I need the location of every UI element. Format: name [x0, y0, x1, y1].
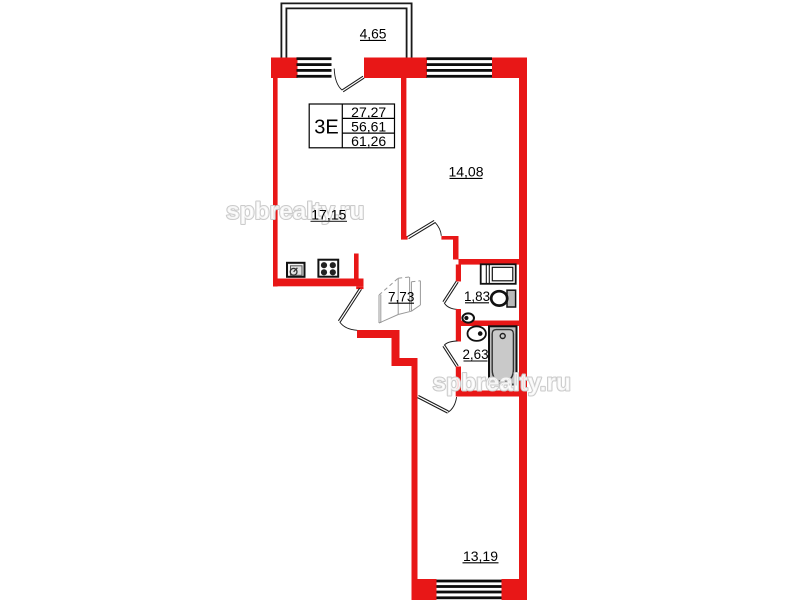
svg-text:13,19: 13,19 [463, 548, 498, 564]
svg-text:27,27: 27,27 [351, 104, 386, 120]
svg-text:17,15: 17,15 [311, 207, 346, 223]
svg-text:3Е: 3Е [314, 117, 338, 139]
svg-text:4,65: 4,65 [360, 27, 387, 42]
svg-text:1,83: 1,83 [464, 289, 490, 304]
svg-text:56,61: 56,61 [351, 119, 386, 135]
svg-text:61,26: 61,26 [351, 133, 386, 149]
svg-text:2,63: 2,63 [462, 347, 488, 362]
svg-text:14,08: 14,08 [448, 164, 483, 180]
svg-text:spbrealty.ru: spbrealty.ru [433, 370, 571, 397]
svg-text:7,73: 7,73 [388, 289, 414, 304]
